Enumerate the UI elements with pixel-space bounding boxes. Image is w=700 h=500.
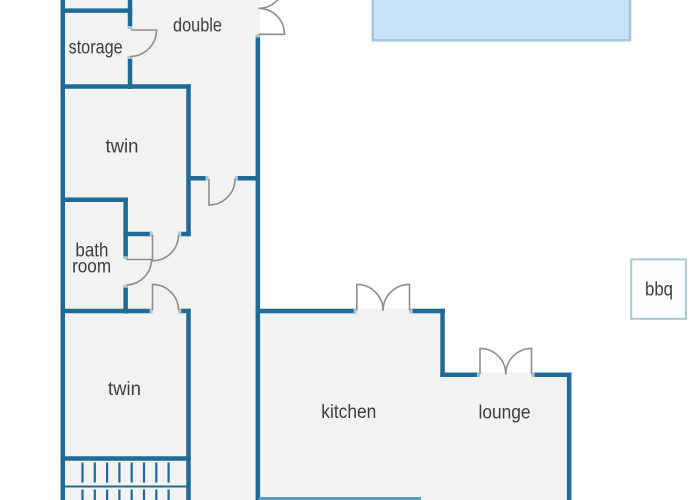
svg-text:double: double	[173, 15, 222, 36]
svg-text:kitchen: kitchen	[321, 402, 376, 423]
svg-text:twin: twin	[108, 379, 141, 400]
svg-text:twin: twin	[106, 137, 139, 158]
svg-text:bbq: bbq	[645, 280, 673, 301]
svg-text:storage: storage	[69, 38, 123, 59]
svg-text:room: room	[72, 256, 111, 277]
svg-text:lounge: lounge	[479, 402, 531, 423]
